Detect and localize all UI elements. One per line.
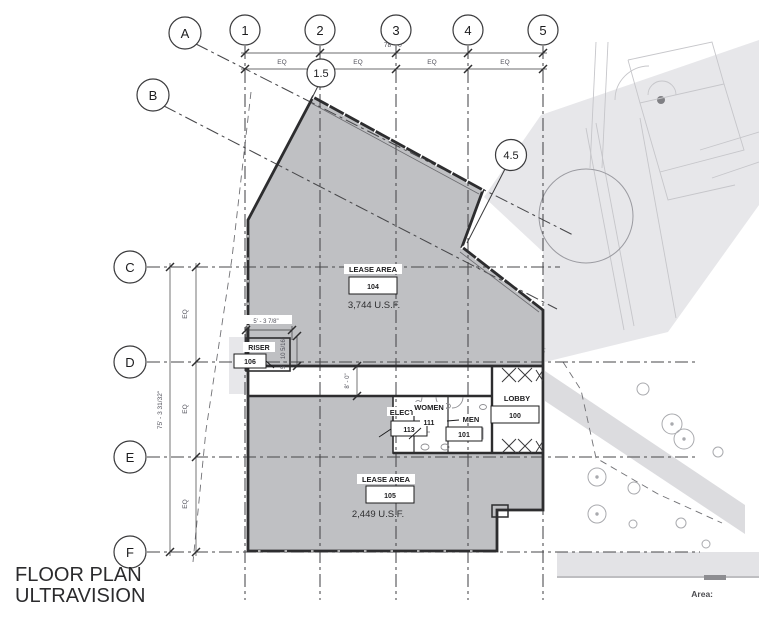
- dim-top-eq-1: EQ: [277, 59, 286, 66]
- lease-104-name: LEASE AREA: [349, 265, 398, 274]
- dim-left-eq-3: EQ: [182, 499, 189, 508]
- dim-riser-height: 5' - 10 5/16": [281, 337, 287, 369]
- bubble-col-3: 3: [392, 23, 399, 38]
- floor-plan-sheet: 78' - 0" EQ EQ EQ EQ 75' - 3 31/32" EQ E…: [0, 0, 759, 630]
- bubble-col-4: 4: [464, 23, 471, 38]
- bubble-row-C: C: [125, 260, 134, 275]
- bubble-col-1-5: 1.5: [313, 68, 328, 80]
- dim-top-eq-3: EQ: [427, 59, 436, 66]
- bubble-diag-A: A: [181, 26, 190, 41]
- elect-number: 113: [403, 427, 414, 434]
- dim-riser-width: 5' - 3 7/8": [253, 319, 278, 325]
- men-number: 101: [458, 432, 470, 439]
- lease-104-area: 3,744 U.S.F.: [348, 300, 400, 311]
- dim-left-eq-1: EQ: [182, 309, 189, 318]
- bubble-row-E: E: [126, 450, 135, 465]
- women-number: 111: [424, 420, 435, 427]
- lease-105-number: 105: [384, 493, 396, 500]
- lease-105-area: 2,449 U.S.F.: [352, 509, 404, 520]
- floor-plan-drawing: 78' - 0" EQ EQ EQ EQ 75' - 3 31/32" EQ E…: [0, 0, 759, 630]
- women-name: WOMEN: [414, 403, 444, 412]
- bubble-col-2: 2: [316, 23, 323, 38]
- lobby-name: LOBBY: [504, 394, 530, 403]
- lobby-number: 100: [509, 413, 521, 420]
- bubble-diag-B: B: [149, 88, 158, 103]
- dim-top-eq-2: EQ: [353, 59, 362, 66]
- men-name: MEN: [463, 415, 480, 424]
- property-line-west: [193, 92, 251, 562]
- bubble-row-D: D: [125, 355, 134, 370]
- dim-corridor-height: 8' - 0": [345, 373, 351, 388]
- lease-104-number: 104: [367, 284, 379, 291]
- bubble-row-F: F: [126, 545, 134, 560]
- area-note: Area:: [691, 589, 713, 599]
- sheet-title-line2: ULTRAVISION: [15, 585, 145, 607]
- lease-105-name: LEASE AREA: [362, 475, 411, 484]
- bubble-col-4-5: 4.5: [503, 150, 518, 162]
- sheet-title-line1: FLOOR PLAN: [15, 564, 142, 586]
- dim-left-total: 75' - 3 31/32": [157, 390, 164, 429]
- riser-name: RISER: [248, 345, 269, 352]
- riser-number: 106: [244, 359, 256, 366]
- bubble-col-5: 5: [539, 23, 546, 38]
- dim-left-eq-2: EQ: [182, 404, 189, 413]
- dim-top-eq-4: EQ: [500, 59, 509, 66]
- elect-name: ELECT: [390, 408, 415, 417]
- bubble-col-1: 1: [241, 23, 248, 38]
